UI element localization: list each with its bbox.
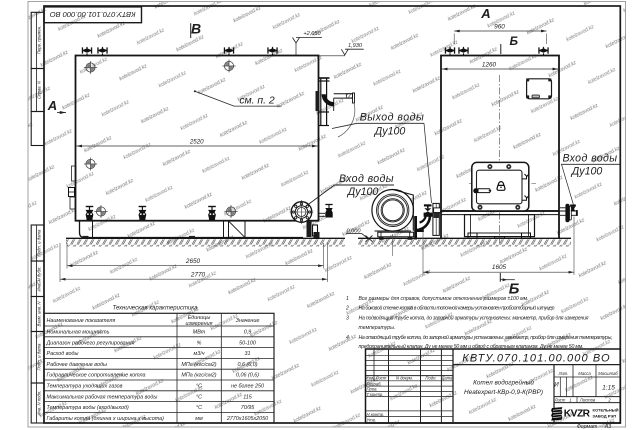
svg-text:На боковой стенке котла в обла: На боковой стенке котла в области топочн… (359, 305, 555, 312)
svg-text:Вход воды: Вход воды (339, 173, 394, 185)
svg-text:Ду100: Ду100 (374, 126, 406, 138)
svg-text:2770: 2770 (190, 271, 206, 278)
svg-text:Листов: Листов (579, 397, 596, 402)
svg-text:4: 4 (346, 335, 349, 341)
svg-text:КВТУ.070.101.00.000 ВО: КВТУ.070.101.00.000 ВО (50, 10, 136, 19)
svg-text:Подп.: Подп. (425, 376, 436, 381)
svg-text:+2,050: +2,050 (303, 31, 321, 37)
svg-text:Вход воды: Вход воды (562, 153, 617, 165)
svg-text:МПа (кгс/см2): МПа (кгс/см2) (181, 373, 216, 379)
svg-text:Инв. N дубл.: Инв. N дубл. (37, 267, 42, 292)
svg-text:Справ. N: Справ. N (37, 80, 42, 99)
svg-text:КВТУ.070.101.00.000 ВО: КВТУ.070.101.00.000 ВО (462, 352, 610, 364)
svg-text:2520: 2520 (189, 138, 204, 145)
svg-text:1605: 1605 (492, 264, 507, 271)
svg-text:температуры.: температуры. (359, 325, 396, 331)
svg-text:измерения: измерения (186, 321, 213, 327)
svg-text:м3/ч: м3/ч (194, 351, 205, 357)
svg-text:Перв. примен.: Перв. примен. (37, 26, 42, 55)
svg-text:1: 1 (346, 296, 349, 302)
svg-text:115: 115 (243, 394, 253, 400)
svg-text:В: В (191, 21, 201, 37)
svg-text:Температура воды (вход/выход): Температура воды (вход/выход) (47, 405, 130, 411)
svg-text:Разраб.: Разраб. (367, 381, 382, 386)
svg-text:А: А (480, 6, 490, 21)
svg-text:Значение: Значение (236, 318, 260, 324)
svg-text:Ду100: Ду100 (571, 165, 603, 177)
svg-text:Гидравлическое сопротивление к: Гидравлическое сопротивление котла (47, 373, 146, 379)
svg-text:Дата: Дата (440, 376, 453, 381)
svg-text:960: 960 (494, 23, 505, 30)
svg-text:°С: °С (196, 384, 202, 390)
svg-text:Формат: Формат (577, 424, 598, 430)
svg-text:Инв. N подл.: Инв. N подл. (37, 390, 42, 415)
svg-text:Лист: Лист (554, 397, 566, 402)
svg-text:Диапазон рабочего регулировани: Диапазон рабочего регулирования (46, 340, 135, 346)
svg-text:мм: мм (195, 416, 203, 422)
svg-text:Максимальная рабочая температу: Максимальная рабочая температура воды (47, 394, 158, 400)
svg-text:1260: 1260 (482, 61, 497, 68)
svg-text:Лит.: Лит. (558, 371, 569, 376)
svg-text:°С: °С (196, 405, 202, 411)
svg-text:Температура уходящих газов: Температура уходящих газов (47, 384, 123, 390)
svg-text:Рабочее давление воды: Рабочее давление воды (47, 362, 107, 368)
svg-text:0,06 (0,6): 0,06 (0,6) (236, 373, 259, 379)
svg-text:А: А (47, 98, 57, 113)
svg-text:МПа (кгс/см2): МПа (кгс/см2) (181, 362, 216, 368)
svg-text:Масштаб: Масштаб (598, 371, 618, 376)
svg-text:1: 1 (569, 397, 571, 402)
svg-text:Котел водогрейный: Котел водогрейный (473, 379, 534, 387)
svg-text:Подп. и дата: Подп. и дата (37, 343, 42, 371)
svg-text:Ду100: Ду100 (347, 186, 379, 198)
svg-text:Б: Б (509, 281, 520, 298)
svg-text:Наименование показателя: Наименование показателя (47, 318, 116, 324)
svg-text:Heatexpert-КВр-0,9-К(РВР): Heatexpert-КВр-0,9-К(РВР) (464, 389, 543, 396)
svg-text:На отводящий трубе котла, до з: На отводящий трубе котла, до запорной ар… (359, 334, 613, 341)
svg-text:°С: °С (196, 394, 202, 400)
svg-text:Утв.: Утв. (367, 418, 377, 423)
svg-text:Все размеры для справок, допус: Все размеры для справок, допустимое откл… (359, 296, 529, 302)
svg-text:0,9: 0,9 (244, 330, 252, 336)
svg-text:Расход воды: Расход воды (47, 351, 79, 357)
svg-text:31: 31 (245, 351, 251, 357)
svg-text:Техническая характеристика: Техническая характеристика (113, 306, 199, 312)
svg-text:Т.контр.: Т.контр. (367, 392, 384, 397)
svg-text:1:15: 1:15 (602, 384, 615, 391)
svg-text:0,6 (6,0): 0,6 (6,0) (237, 362, 257, 368)
svg-text:Масса: Масса (578, 371, 591, 376)
svg-text:KVZR: KVZR (564, 409, 591, 420)
svg-text:ЗАВОД РЭП: ЗАВОД РЭП (593, 414, 617, 419)
svg-text:КОТЕЛЬНЫЙ: КОТЕЛЬНЫЙ (593, 408, 619, 413)
svg-text:Н.контр.: Н.контр. (367, 412, 385, 417)
svg-text:70/95: 70/95 (241, 405, 255, 411)
svg-text:А3: А3 (604, 424, 611, 430)
svg-text:Габариты котла (длинна х ширин: Габариты котла (длинна х ширина х высота… (47, 416, 165, 422)
svg-text:2650: 2650 (185, 258, 201, 265)
svg-text:2: 2 (345, 306, 349, 312)
svg-text:Взам. инв. N: Взам. инв. N (37, 301, 42, 327)
svg-text:И: И (554, 382, 559, 389)
svg-text:Изм.: Изм. (365, 376, 374, 381)
svg-text:МВт: МВт (193, 330, 206, 336)
svg-text:не более 250: не более 250 (231, 384, 264, 390)
svg-text:Б: Б (509, 34, 518, 48)
svg-text:50-100: 50-100 (239, 340, 256, 346)
svg-text:Выход воды: Выход воды (360, 112, 425, 124)
svg-text:%: % (197, 340, 202, 346)
svg-text:N докум.: N докум. (396, 376, 413, 381)
svg-text:2770х1605х2050: 2770х1605х2050 (226, 416, 268, 422)
svg-text:Номинальная мощность: Номинальная мощность (47, 330, 110, 336)
svg-text:На подводящий трубе котла, до: На подводящий трубе котла, до запорной а… (359, 314, 589, 321)
svg-text:Лист: Лист (375, 376, 387, 381)
svg-text:см. п. 2: см. п. 2 (239, 96, 275, 107)
svg-text:3: 3 (346, 315, 349, 321)
svg-text:Подп. и дата: Подп. и дата (37, 229, 42, 257)
svg-text:1,930: 1,930 (348, 43, 363, 49)
